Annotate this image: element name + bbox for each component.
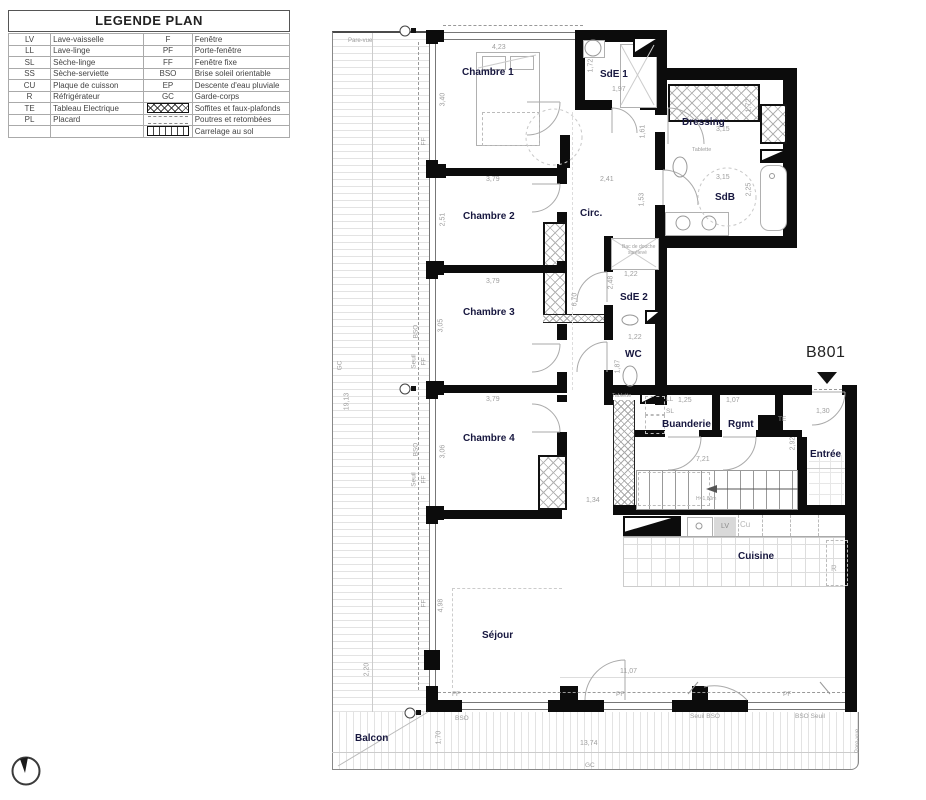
legend-abbr: F bbox=[144, 34, 193, 46]
legend-row: SLSèche-lingeFFFenêtre fixe bbox=[9, 57, 290, 69]
legend-abbr: BSO bbox=[144, 68, 193, 80]
duct-soffit bbox=[760, 149, 786, 163]
wall-segment bbox=[604, 305, 613, 340]
wall-segment bbox=[557, 261, 567, 273]
legend-label: Soffites et faux-plafonds bbox=[192, 103, 289, 115]
legend-label: Tableau Electrique bbox=[51, 103, 144, 115]
toilet-bowl bbox=[673, 157, 687, 177]
duct-soffit bbox=[633, 37, 659, 57]
wall-segment bbox=[557, 212, 567, 222]
legend-title: LEGENDE PLAN bbox=[8, 10, 290, 32]
entry-floor-line bbox=[807, 468, 845, 469]
legend-abbr bbox=[9, 126, 51, 138]
wall-segment bbox=[424, 650, 440, 670]
dim-label: 1,87 bbox=[614, 360, 621, 374]
counter-div bbox=[738, 515, 739, 536]
dim-label: 1,07 bbox=[726, 397, 740, 404]
door-arc-buanderie bbox=[668, 437, 701, 470]
tag-pf: PF bbox=[783, 691, 791, 698]
door-arc-rgmt bbox=[723, 437, 756, 470]
tag-bso: BSO bbox=[455, 715, 469, 722]
north-compass-circle bbox=[13, 758, 40, 785]
dim-label: 11,07 bbox=[620, 668, 637, 675]
room-label-entree: Entrée bbox=[810, 449, 841, 460]
dim-label: 1,22 bbox=[624, 271, 638, 278]
tag-ff: FF bbox=[420, 600, 427, 608]
wall-segment bbox=[655, 132, 665, 170]
dim-label: 7,21 bbox=[696, 456, 710, 463]
dim-label: 1,22 bbox=[628, 334, 642, 341]
beam-line bbox=[452, 588, 453, 688]
dim-label: 1,53 bbox=[638, 193, 645, 207]
door-arc-chambre4 bbox=[532, 404, 560, 432]
counter-div bbox=[818, 515, 819, 536]
wall-segment bbox=[699, 430, 722, 437]
wall-segment bbox=[575, 100, 612, 110]
legend-label: Fenêtre fixe bbox=[192, 57, 289, 69]
dim-label: 3,05 bbox=[437, 319, 444, 333]
dim-label: 2,41 bbox=[600, 176, 614, 183]
window-pf bbox=[748, 702, 845, 710]
wall-segment bbox=[655, 248, 667, 405]
legend-label: Fenêtre bbox=[192, 34, 289, 46]
legend-row: Carrelage au sol bbox=[9, 126, 290, 138]
kitchen-hood-soffit bbox=[623, 516, 681, 537]
door-arc-sde1 bbox=[612, 108, 637, 133]
furniture-dashed bbox=[482, 112, 540, 146]
room-label-circ: Circ. bbox=[580, 208, 602, 219]
wall-segment bbox=[560, 686, 578, 700]
room-label-chambre2: Chambre 2 bbox=[463, 211, 515, 222]
soffites-symbol bbox=[144, 103, 193, 115]
wall-segment bbox=[444, 385, 567, 393]
tag-ll: LL bbox=[666, 396, 673, 403]
room-label-sde1: SdE 1 bbox=[600, 69, 628, 80]
wall-segment bbox=[655, 236, 797, 248]
legend-row: LLLave-lingePFPorte-fenêtre bbox=[9, 45, 290, 57]
tag-ff: FF bbox=[420, 476, 427, 484]
dim-label: 2,92 bbox=[789, 437, 796, 451]
dim-label: 1,34 bbox=[586, 497, 600, 504]
bso-line-top bbox=[443, 25, 583, 26]
tag-r: R bbox=[831, 564, 837, 573]
legend-label: Porte-fenêtre bbox=[192, 45, 289, 57]
dim-label: 3,79 bbox=[486, 176, 500, 183]
door-arc-wc bbox=[577, 342, 607, 372]
room-label-buanderie: Buanderie bbox=[662, 419, 711, 430]
tag-cu: Cu bbox=[740, 520, 750, 529]
unit-number: B801 bbox=[806, 344, 845, 362]
wall-segment bbox=[444, 510, 562, 519]
wall-segment bbox=[655, 205, 665, 236]
dim-label: 3,79 bbox=[486, 396, 500, 403]
legend-row: SSSèche-servietteBSOBrise soleil orienta… bbox=[9, 68, 290, 80]
wall-segment bbox=[604, 385, 812, 395]
grid-symbol bbox=[147, 126, 189, 136]
wall-segment bbox=[444, 265, 567, 273]
tag-ff: FF bbox=[420, 358, 427, 366]
wall-segment bbox=[426, 261, 438, 279]
carrelage-symbol bbox=[144, 126, 193, 138]
legend-label: Placard bbox=[51, 114, 144, 126]
tag-seuil-bso: Seuil BSO bbox=[690, 713, 720, 720]
counter-div bbox=[790, 515, 791, 536]
dim-label: 2,51 bbox=[439, 213, 446, 227]
balcony-left-strip bbox=[332, 31, 429, 714]
tag-pare-vue: Pare-vue bbox=[855, 729, 861, 753]
dim-label: 19,13 bbox=[343, 393, 350, 411]
room-label-wc: WC bbox=[625, 349, 642, 360]
soffit-strip bbox=[613, 400, 635, 505]
legend-label: Lave-linge bbox=[51, 45, 144, 57]
dim-label: 3,40 bbox=[439, 93, 446, 107]
legend-label bbox=[51, 126, 144, 138]
legend-label: Poutres et retombées bbox=[192, 114, 289, 126]
legend-abbr: R bbox=[9, 91, 51, 103]
legend-abbr: TE bbox=[9, 103, 51, 115]
legend-label: Lave-vaisselle bbox=[51, 34, 144, 46]
north-compass-needle bbox=[20, 757, 28, 773]
entry-door-threshold bbox=[814, 389, 842, 390]
wall-segment bbox=[797, 437, 807, 512]
wall-segment bbox=[548, 700, 604, 712]
wall-segment bbox=[426, 160, 438, 178]
tag-seuil: Seuil bbox=[411, 472, 418, 486]
tag-tablette: Tablette bbox=[612, 393, 631, 399]
window-left-facade bbox=[429, 42, 436, 688]
legend-abbr: PF bbox=[144, 45, 193, 57]
placard-hatch bbox=[538, 455, 567, 510]
dim-label: 3,79 bbox=[486, 278, 500, 285]
room-label-sde2: SdE 2 bbox=[620, 292, 648, 303]
fridge bbox=[826, 540, 848, 586]
window-pf bbox=[604, 702, 672, 710]
sejour-dim-line bbox=[560, 677, 845, 678]
corridor-axis bbox=[572, 112, 573, 390]
duct-soffit bbox=[645, 310, 659, 324]
legend-table: LVLave-vaisselleFFenêtre LLLave-lingePFP… bbox=[8, 33, 290, 138]
room-label-sdb: SdB bbox=[715, 192, 735, 203]
kitchen-tile-floor bbox=[623, 537, 854, 587]
room-label-rgmt: Rgmt bbox=[728, 419, 754, 430]
balcony-bottom-rail bbox=[332, 752, 857, 753]
dim-label: 1,72 bbox=[745, 99, 752, 113]
legend-label: Réfrigérateur bbox=[51, 91, 144, 103]
legend-row: CUPlaque de cuissonEPDescente d'eau pluv… bbox=[9, 80, 290, 92]
tag-seuil: Seuil bbox=[411, 354, 418, 368]
legend-abbr: EP bbox=[144, 80, 193, 92]
entry-tile-floor bbox=[809, 455, 844, 505]
counter-edge bbox=[623, 536, 845, 537]
dishwasher: LV bbox=[714, 517, 736, 536]
wall-segment bbox=[672, 700, 748, 712]
toilet-bowl bbox=[623, 366, 637, 386]
wall-segment bbox=[557, 176, 567, 184]
tag-pf: PF bbox=[616, 691, 624, 698]
tag-te: TE bbox=[778, 416, 786, 423]
legend-label: Sèche-linge bbox=[51, 57, 144, 69]
wall-segment bbox=[692, 686, 708, 700]
wall-segment bbox=[446, 168, 567, 176]
room-label-sejour: Séjour bbox=[482, 630, 513, 641]
tag-bso-seuil: BSO Seuil bbox=[795, 713, 825, 720]
wall-segment bbox=[557, 395, 567, 402]
legend-abbr: LV bbox=[9, 34, 51, 46]
wall-segment bbox=[426, 381, 438, 399]
window-chambre1 bbox=[444, 32, 583, 40]
tag-tablette: Tablette bbox=[692, 147, 711, 153]
tag-ff: FF bbox=[452, 691, 460, 698]
counter-div bbox=[762, 515, 763, 536]
dim-label: 2,48 bbox=[607, 276, 614, 290]
legend-row: LVLave-vaisselleFFenêtre bbox=[9, 34, 290, 46]
wardrobe-hatch bbox=[760, 104, 787, 144]
legend-label: Garde-corps bbox=[192, 91, 289, 103]
tag-gc: GC bbox=[336, 361, 343, 371]
tag-pare-vue: Pare-vue bbox=[348, 38, 372, 44]
door-arc-sde2 bbox=[577, 272, 607, 302]
wall-segment bbox=[426, 686, 438, 712]
legend-abbr: FF bbox=[144, 57, 193, 69]
legend-row: RRéfrigérateurGCGarde-corps bbox=[9, 91, 290, 103]
legend-row: PLPlacardPoutres et retombées bbox=[9, 114, 290, 126]
legend-label: Descente d'eau pluviale bbox=[192, 80, 289, 92]
legend-abbr: SS bbox=[9, 68, 51, 80]
soffit-band bbox=[543, 314, 612, 323]
door-arc-sdb bbox=[663, 170, 698, 205]
dim-label: 4,23 bbox=[492, 44, 506, 51]
dim-label: 1,97 bbox=[612, 86, 626, 93]
dashed-symbol bbox=[148, 116, 188, 124]
washer bbox=[645, 396, 665, 415]
dim-label: 3,15 bbox=[716, 174, 730, 181]
balcony-left-rail bbox=[372, 33, 373, 712]
wall-segment bbox=[557, 432, 567, 455]
dim-label: 4,98 bbox=[437, 599, 444, 613]
legend-label: Plaque de cuisson bbox=[51, 80, 144, 92]
basin-counter bbox=[665, 212, 729, 236]
poutres-symbol bbox=[144, 114, 193, 126]
wall-segment bbox=[660, 68, 795, 80]
legend-label: Brise soleil orientable bbox=[192, 68, 289, 80]
room-label-cuisine: Cuisine bbox=[738, 551, 774, 562]
kitchen-sink bbox=[687, 517, 713, 537]
wall-segment bbox=[426, 30, 438, 44]
room-label-chambre4: Chambre 4 bbox=[463, 433, 515, 444]
legend-abbr: SL bbox=[9, 57, 51, 69]
legend-abbr: LL bbox=[9, 45, 51, 57]
beam-line bbox=[452, 588, 562, 589]
dim-label: 2,25 bbox=[745, 183, 752, 197]
shower-note: surélevé bbox=[628, 250, 647, 256]
room-label-chambre1: Chambre 1 bbox=[462, 67, 514, 78]
dim-label: 1,30 bbox=[816, 408, 830, 415]
bathtub bbox=[760, 165, 787, 231]
legend-abbr: CU bbox=[9, 80, 51, 92]
dim-label: 2,20 bbox=[363, 663, 370, 677]
washbasin-cabinet bbox=[583, 40, 605, 58]
tag-bso: BSO bbox=[412, 443, 419, 457]
tag-sl: SL bbox=[666, 408, 674, 415]
dim-label: 1,61 bbox=[639, 125, 646, 139]
dim-label: 1,25 bbox=[678, 397, 692, 404]
dim-label: 1,72 bbox=[587, 59, 594, 73]
dim-label: 3,06 bbox=[439, 445, 446, 459]
entrance-marker-triangle bbox=[817, 372, 837, 384]
window-ff bbox=[462, 702, 548, 710]
legend-row: TETableau ElectriqueSoffites et faux-pla… bbox=[9, 103, 290, 115]
dim-label: 1,70 bbox=[435, 731, 442, 745]
basin-bowl bbox=[622, 315, 638, 325]
dim-label: 3,15 bbox=[716, 126, 730, 133]
wall-segment bbox=[557, 324, 567, 340]
dim-label: 13,74 bbox=[580, 740, 598, 747]
wall-segment bbox=[845, 686, 857, 712]
door-arc-chambre2 bbox=[532, 184, 560, 212]
legend-label: Sèche-serviette bbox=[51, 68, 144, 80]
tag-bso: BSO bbox=[412, 325, 419, 339]
wall-segment bbox=[426, 506, 438, 524]
room-label-chambre3: Chambre 3 bbox=[463, 307, 515, 318]
room-label-balcon: Balcon bbox=[355, 733, 388, 744]
door-arc-chambre3 bbox=[532, 344, 560, 372]
legend-label: Carrelage au sol bbox=[192, 126, 289, 138]
tag-ff: FF bbox=[420, 138, 427, 146]
bso-line-left bbox=[418, 42, 419, 690]
stairs-note: H=1,80m bbox=[696, 496, 716, 502]
dim-label: 6,70 bbox=[571, 293, 578, 307]
tag-gc: GC bbox=[585, 762, 595, 769]
legend-abbr: GC bbox=[144, 91, 193, 103]
crosshatch-symbol bbox=[147, 103, 189, 113]
legend-abbr: PL bbox=[9, 114, 51, 126]
